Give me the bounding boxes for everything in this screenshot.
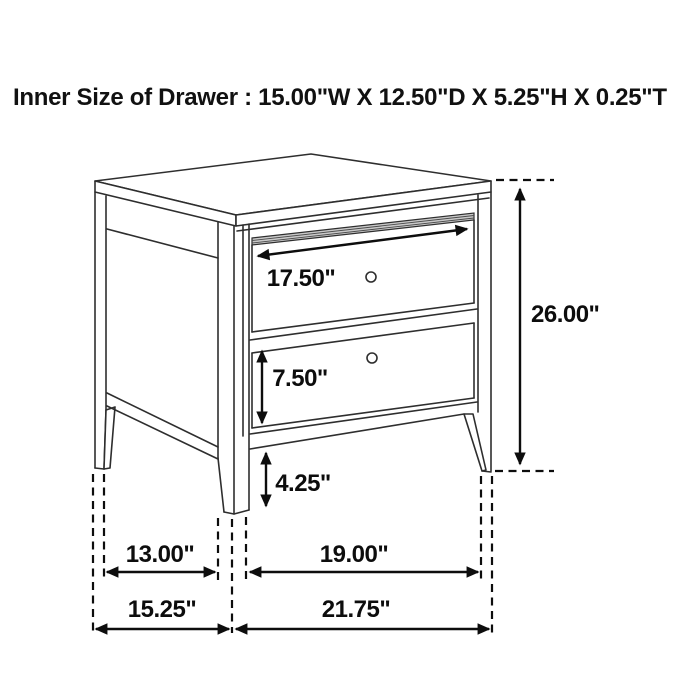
dimension-label: 4.25" — [275, 470, 331, 497]
front-left-leg — [218, 222, 249, 514]
dimension-overall-depth: 15.25" — [96, 596, 229, 629]
dimension-label: 26.00" — [531, 301, 599, 328]
dimension-overall-height: 26.00" — [520, 189, 599, 464]
dimension-overall-width: 21.75" — [236, 596, 489, 629]
dimension-floor-clearance: 4.25" — [266, 453, 331, 506]
front-right-leg — [464, 192, 491, 472]
dimension-side-inner-span: 13.00" — [107, 541, 215, 572]
dimension-label: 19.00" — [320, 541, 388, 568]
dimension-label: 7.50" — [272, 365, 328, 392]
dimension-front-inner-span: 19.00" — [250, 541, 478, 572]
nightstand-drawing — [95, 154, 491, 514]
dimension-label: 17.50" — [267, 265, 335, 292]
dimension-label: 21.75" — [322, 596, 390, 623]
dimension-diagram: 17.50" 26.00" 7.50" 4.25" 13.00" 19.00" … — [0, 0, 700, 700]
dimension-bottom-drawer-height: 7.50" — [262, 351, 328, 423]
top-drawer-knob — [366, 272, 376, 282]
dimension-label: 15.25" — [128, 596, 196, 623]
dimension-label: 13.00" — [126, 541, 194, 568]
left-side-panel — [95, 192, 218, 469]
bottom-drawer-knob — [367, 353, 377, 363]
